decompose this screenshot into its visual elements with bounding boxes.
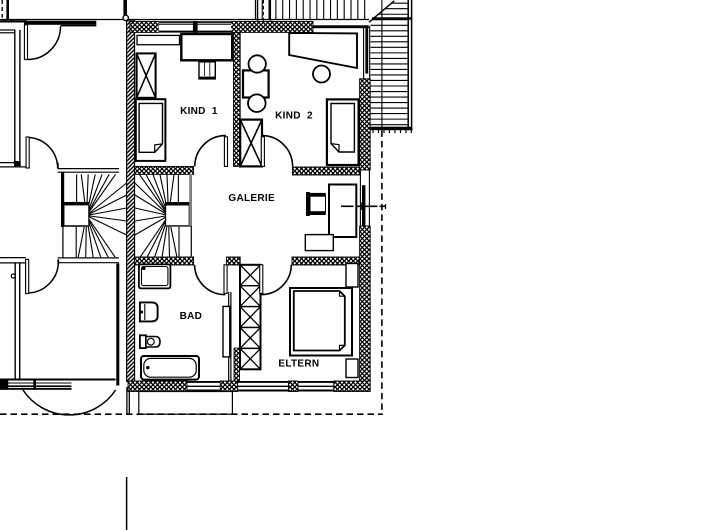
svg-text:GALERIE: GALERIE: [228, 193, 275, 204]
svg-text:KIND 1: KIND 1: [180, 106, 218, 117]
svg-text:ELTERN: ELTERN: [278, 359, 319, 370]
svg-text:KIND 2: KIND 2: [275, 110, 313, 121]
svg-text:BAD: BAD: [180, 311, 203, 322]
